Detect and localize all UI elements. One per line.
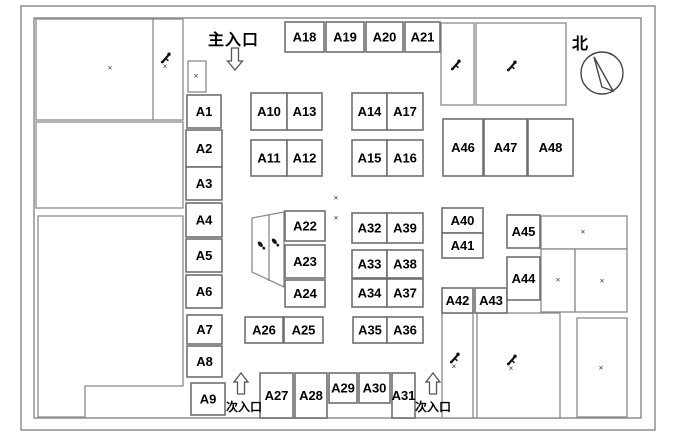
booth-label: A38: [393, 257, 417, 272]
booth-A22: A22: [285, 211, 325, 241]
main-entrance-label: 主入口: [208, 26, 259, 50]
hall-area-l-shape: [38, 216, 183, 417]
x-mark: ×: [600, 277, 605, 286]
booth-label: A48: [539, 140, 563, 155]
booth-A5: A5: [186, 239, 222, 272]
booth-A41: A41: [442, 233, 483, 258]
booth-label: A14: [358, 104, 383, 119]
booth-label: A26: [252, 323, 276, 338]
floor-plan: A1A2A3A4A5A6A7A8A9A10A13A11A12A14A17A15A…: [0, 0, 693, 439]
booth-label: A4: [196, 213, 213, 228]
booth-label: A24: [293, 286, 318, 301]
booth-A35: A35: [353, 317, 387, 343]
booth-A39: A39: [387, 213, 423, 243]
booth-A15: A15: [352, 140, 387, 176]
booth-A2: A2: [186, 130, 222, 167]
compass-needle: [594, 57, 613, 91]
booth-label: A25: [292, 323, 316, 338]
booth-A7: A7: [187, 315, 222, 344]
booth-label: A16: [393, 151, 417, 166]
x-mark: ×: [556, 276, 561, 285]
main-entrance-arrow: [228, 48, 243, 70]
booth-label: A10: [257, 104, 281, 119]
booth-label: A15: [358, 151, 382, 166]
booth-label: A47: [494, 140, 518, 155]
booth-label: A20: [373, 30, 397, 45]
booth-A45: A45: [507, 215, 540, 248]
side-entrance-label-right: 次入口: [415, 398, 451, 415]
x-mark: ×: [108, 64, 113, 73]
booth-A46: A46: [443, 119, 483, 176]
booth-A27: A27: [260, 373, 293, 418]
x-mark: ×: [599, 364, 604, 373]
booth-A18: A18: [285, 22, 324, 52]
booth-A20: A20: [366, 22, 403, 52]
booth-A26: A26: [245, 317, 283, 343]
booth-label: A41: [451, 238, 475, 253]
booth-A31: A31: [392, 373, 416, 418]
booth-label: A29: [331, 381, 355, 396]
x-mark: ×: [509, 364, 514, 373]
booth-A25: A25: [284, 317, 323, 343]
booth-label: A30: [363, 381, 387, 396]
booth-label: A32: [358, 221, 382, 236]
booth-label: A22: [293, 219, 317, 234]
booth-A12: A12: [287, 140, 322, 176]
booth-A28: A28: [295, 373, 327, 418]
booth-A36: A36: [387, 317, 423, 343]
booth-label: A7: [196, 322, 213, 337]
booth-A21: A21: [405, 22, 440, 52]
booth-label: A9: [200, 392, 217, 407]
booth-label: A3: [196, 176, 213, 191]
side-entrance-arrow-right: [426, 373, 440, 394]
booth-A32: A32: [352, 213, 387, 243]
booth-A24: A24: [285, 280, 325, 307]
booth-label: A35: [358, 323, 382, 338]
booth-A10: A10: [251, 93, 287, 130]
booth-label: A1: [196, 104, 213, 119]
booth-A6: A6: [186, 275, 222, 308]
booth-A42: A42: [442, 288, 473, 313]
booth-A38: A38: [387, 250, 423, 278]
booth-A47: A47: [484, 119, 527, 176]
booth-label: A33: [358, 257, 382, 272]
booth-A30: A30: [359, 373, 390, 403]
booth-label: A18: [293, 30, 317, 45]
north-label: 北: [572, 30, 588, 54]
booth-label: A37: [393, 286, 417, 301]
booth-label: A11: [257, 151, 280, 166]
booth-label: A40: [451, 213, 475, 228]
booth-label: A31: [392, 388, 416, 403]
booth-A37: A37: [387, 279, 423, 307]
booth-label: A12: [293, 151, 317, 166]
booth-label: A28: [299, 388, 323, 403]
booth-label: A23: [293, 254, 317, 269]
booth-A19: A19: [326, 22, 364, 52]
booth-label: A43: [479, 293, 503, 308]
booth-label: A36: [393, 323, 417, 338]
booth-label: A13: [293, 104, 317, 119]
booth-label: A46: [451, 140, 475, 155]
booth-A3: A3: [186, 167, 222, 200]
booth-A8: A8: [187, 346, 222, 377]
x-mark: ×: [194, 72, 199, 81]
side-entrance-arrow-left: [234, 373, 248, 394]
booth-A4: A4: [186, 203, 222, 237]
hall-area: [477, 313, 560, 418]
booth-A40: A40: [442, 208, 483, 233]
booth-label: A17: [393, 104, 417, 119]
x-mark: ×: [334, 214, 339, 223]
booth-label: A5: [196, 248, 213, 263]
walkway-area: [252, 212, 284, 287]
booth-label: A19: [333, 30, 357, 45]
booth-label: A45: [512, 224, 536, 239]
x-mark: ×: [581, 228, 586, 237]
side-entrance-label-left: 次入口: [226, 398, 262, 415]
booth-label: A2: [196, 141, 213, 156]
booth-A23: A23: [285, 245, 325, 278]
booth-A33: A33: [352, 250, 387, 278]
booth-A13: A13: [287, 93, 322, 130]
hall-area: [36, 122, 183, 208]
booth-label: A21: [411, 30, 435, 45]
booth-label: A44: [512, 271, 537, 286]
booth-A9: A9: [191, 383, 225, 415]
booth-A11: A11: [251, 140, 287, 176]
booth-label: A8: [196, 354, 213, 369]
booth-label: A6: [196, 284, 213, 299]
booth-label: A27: [265, 388, 289, 403]
booth-label: A34: [358, 286, 383, 301]
booth-A29: A29: [329, 373, 357, 403]
x-mark: ×: [163, 62, 168, 71]
booth-A14: A14: [352, 93, 387, 130]
booth-A34: A34: [352, 279, 387, 307]
booth-label: A39: [393, 221, 417, 236]
x-mark: ×: [334, 194, 339, 203]
booth-A17: A17: [387, 93, 423, 130]
booth-A44: A44: [507, 257, 540, 300]
booth-label: A42: [446, 293, 470, 308]
hall-area: [476, 23, 566, 105]
x-mark: ×: [452, 362, 457, 371]
booth-A1: A1: [187, 95, 221, 128]
booth-A16: A16: [387, 140, 423, 176]
booth-A48: A48: [528, 119, 573, 176]
booth-A43: A43: [475, 288, 507, 313]
floor-plan-drawing: A1A2A3A4A5A6A7A8A9A10A13A11A12A14A17A15A…: [0, 0, 693, 439]
